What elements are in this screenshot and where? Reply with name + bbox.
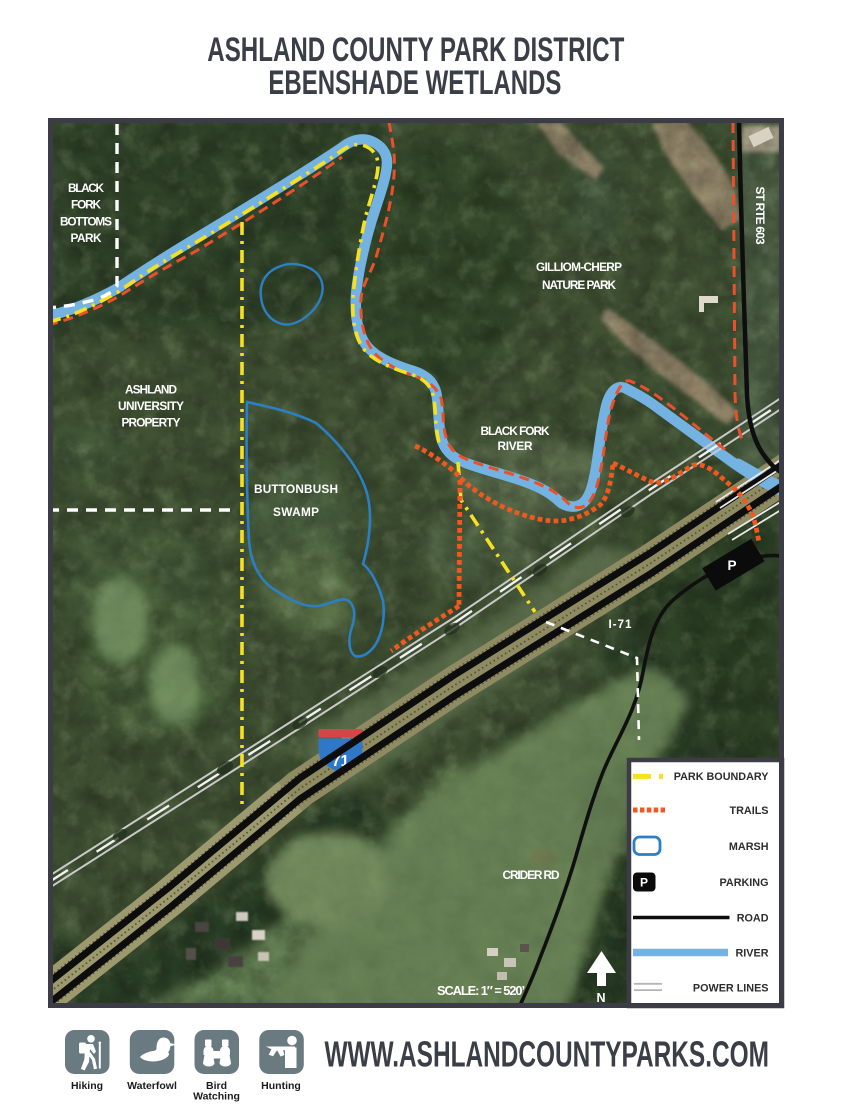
svg-text:RIVER: RIVER [498,439,533,453]
svg-text:PARK BOUNDARY: PARK BOUNDARY [674,771,770,783]
svg-text:EBENSHADE WETLANDS: EBENSHADE WETLANDS [268,63,561,101]
svg-text:BLACK FORK: BLACK FORK [481,424,550,438]
svg-text:CRIDER RD: CRIDER RD [503,868,560,882]
svg-text:N: N [596,991,605,1005]
svg-text:PROPERTY: PROPERTY [122,416,181,430]
svg-text:PARK: PARK [71,231,102,245]
svg-text:PARKING: PARKING [720,877,769,889]
svg-text:TRAILS: TRAILS [730,805,769,817]
svg-text:Watching: Watching [193,1091,240,1103]
svg-text:P: P [727,558,736,573]
svg-text:ST RTE 603: ST RTE 603 [753,187,767,245]
svg-text:SWAMP: SWAMP [273,505,319,519]
svg-text:GILLIOM-CHERP: GILLIOM-CHERP [536,260,622,274]
svg-text:Hiking: Hiking [71,1080,103,1092]
svg-text:Hunting: Hunting [261,1080,301,1092]
svg-text:BUTTONBUSH: BUTTONBUSH [254,482,338,496]
svg-text:ASHLAND: ASHLAND [125,383,177,397]
svg-text:SCALE: 1″ = 520’: SCALE: 1″ = 520’ [437,983,525,998]
svg-text:BOTTOMS: BOTTOMS [60,215,112,229]
svg-text:P: P [640,876,648,890]
svg-text:POWER LINES: POWER LINES [693,982,769,994]
svg-text:WWW.ASHLANDCOUNTYPARKS.COM: WWW.ASHLANDCOUNTYPARKS.COM [324,1034,769,1075]
svg-text:I-71: I-71 [609,617,632,631]
svg-text:RIVER: RIVER [736,947,769,959]
svg-text:ROAD: ROAD [737,912,769,924]
svg-text:MARSH: MARSH [729,841,769,853]
svg-text:BLACK: BLACK [68,181,104,195]
svg-text:UNIVERSITY: UNIVERSITY [118,399,184,413]
svg-text:Waterfowl: Waterfowl [127,1080,177,1092]
svg-text:NATURE PARK: NATURE PARK [542,278,616,292]
svg-text:FORK: FORK [71,198,101,212]
